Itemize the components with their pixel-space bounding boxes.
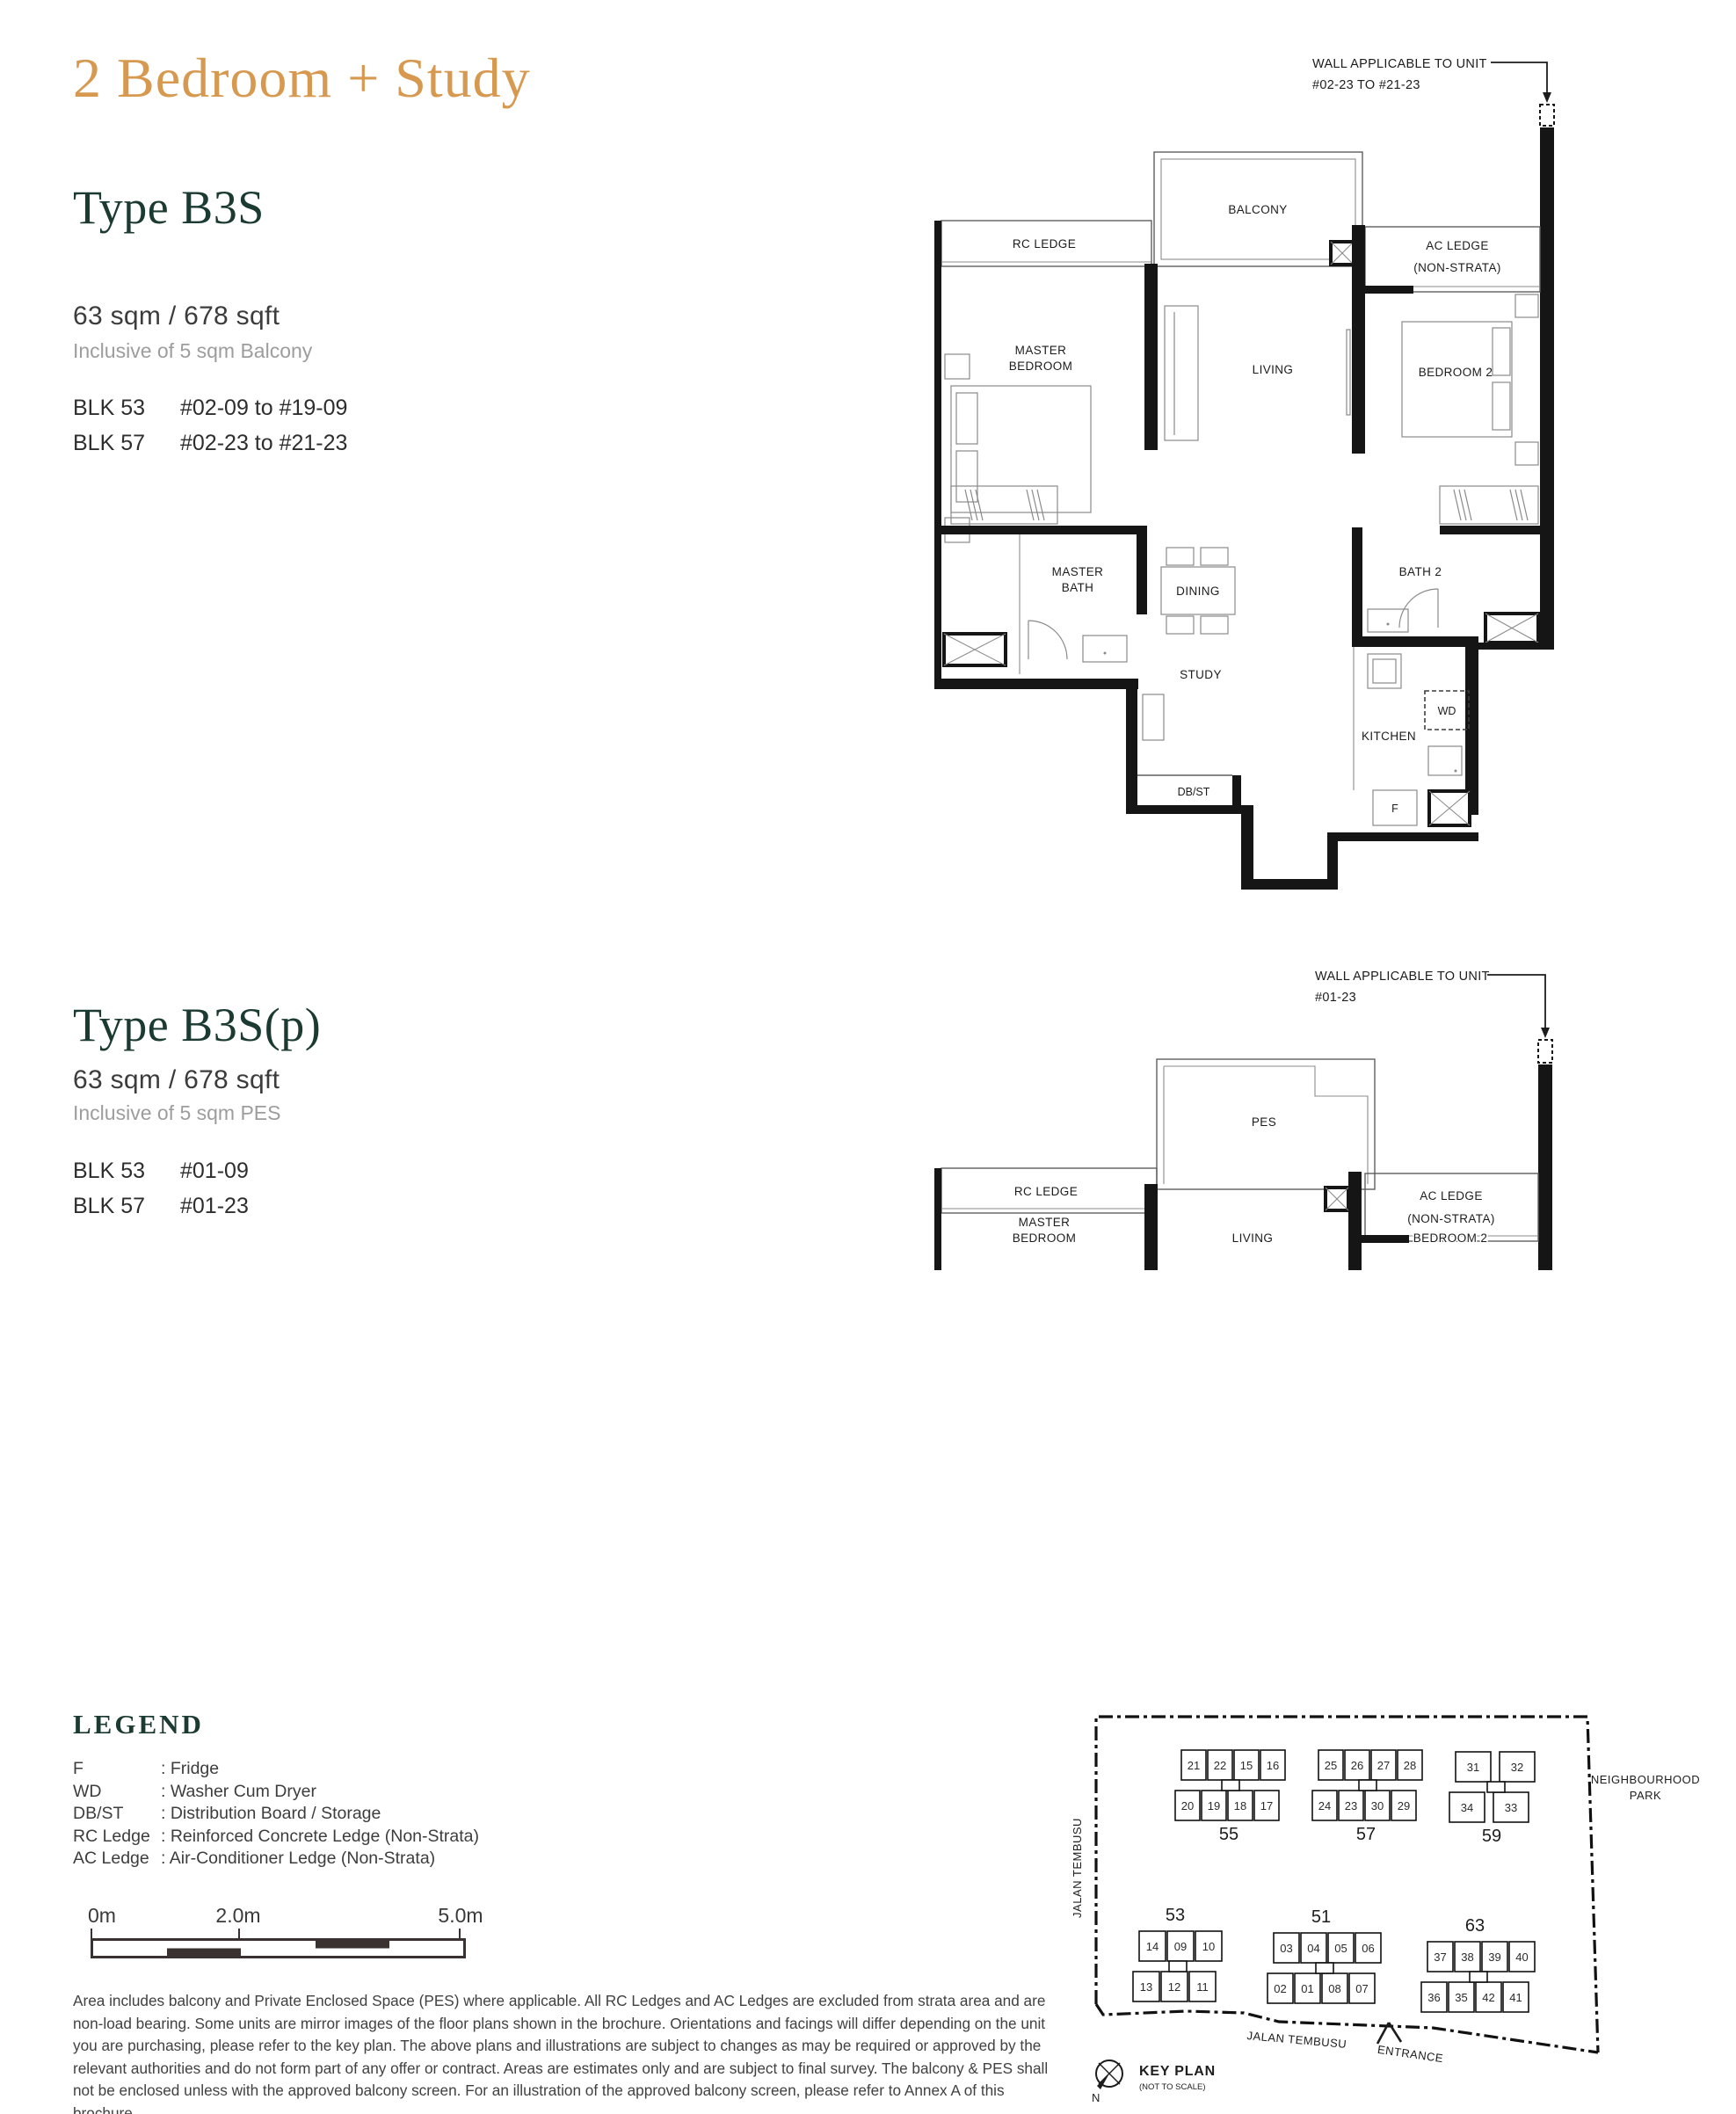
study-left-wall	[1126, 689, 1137, 814]
living-left-wall	[1144, 1184, 1158, 1270]
hob-dot	[1455, 770, 1457, 773]
legend-definition: : Air-Conditioner Ledge (Non-Strata)	[161, 1848, 435, 1871]
living-right-wall	[1352, 225, 1365, 454]
dining-label: DINING	[1176, 585, 1220, 598]
key-plan-unit-number: 42	[1482, 1991, 1494, 2004]
dbst-label: DB/ST	[1178, 786, 1210, 798]
tv-console	[1347, 330, 1350, 415]
key-plan-unit-number: 21	[1188, 1759, 1200, 1772]
type-b3s-inclusive: Inclusive of 5 sqm Balcony	[73, 339, 312, 363]
legend-term: AC Ledge	[73, 1848, 161, 1871]
right-outer-wall	[1538, 1064, 1552, 1270]
key-plan-unit-number: 40	[1515, 1951, 1528, 1964]
bath2-bottom-wall	[1358, 636, 1478, 647]
key-plan-block-number: 63	[1465, 1916, 1485, 1936]
wd-label: WD	[1438, 705, 1456, 717]
master-bedroom-label-1: MASTER	[1015, 344, 1067, 357]
key-plan-unit-number: 19	[1208, 1799, 1220, 1813]
key-plan-block-63: 373839403635424163	[1421, 1916, 1535, 2012]
key-plan-title: KEY PLAN	[1139, 2064, 1216, 2079]
legend-term: RC Ledge	[73, 1826, 161, 1849]
key-plan-block-core	[1359, 1780, 1376, 1791]
key-plan-unit-number: 29	[1398, 1799, 1410, 1813]
scale-segment	[389, 1941, 463, 1956]
wall	[1465, 643, 1554, 650]
key-plan-block-number: 57	[1356, 1825, 1376, 1844]
dashed-wall-segment	[1538, 1040, 1552, 1063]
corridor-bottom-wall	[1241, 879, 1338, 890]
brochure-page: 2 Bedroom + Study Type B3S 63 sqm / 678 …	[0, 0, 1736, 2114]
plan1-wall-annotation-line2: #02-23 TO #21-23	[1312, 78, 1420, 92]
legend-row: WD: Washer Cum Dryer	[73, 1781, 479, 1804]
living-label: LIVING	[1232, 1231, 1274, 1245]
bedroom2-label: BEDROOM 2	[1413, 1231, 1488, 1245]
dining-chair	[1201, 548, 1228, 565]
dashed-wall-segment	[1540, 105, 1554, 126]
key-plan-unit-number: 35	[1455, 1991, 1467, 2004]
bedroom2-bed	[1402, 322, 1512, 437]
legend-term: DB/ST	[73, 1803, 161, 1826]
key-plan-unit-number: 12	[1168, 1980, 1180, 1994]
bath-bottom-wall	[934, 679, 1138, 689]
key-plan-unit-number: 05	[1334, 1942, 1347, 1955]
unit-range: #01-09	[180, 1159, 249, 1184]
floor-plan-type-b3s: WALL APPLICABLE TO UNIT #02-23 TO #21-23…	[923, 48, 1573, 914]
unit-blk: BLK 53	[73, 1159, 180, 1184]
key-plan-unit-number: 25	[1325, 1759, 1337, 1772]
unit-range: #02-23 to #21-23	[180, 431, 347, 456]
legend-row: DB/ST: Distribution Board / Storage	[73, 1803, 479, 1826]
key-plan-unit-number: 15	[1240, 1759, 1253, 1772]
wall-stub	[1365, 286, 1413, 294]
dining-chair	[1166, 616, 1194, 634]
key-plan-unit-number: 30	[1371, 1799, 1384, 1813]
drain-dot	[1104, 652, 1107, 655]
north-compass-icon	[1096, 2060, 1122, 2089]
key-plan-block-57: 252627282423302957	[1312, 1750, 1422, 1844]
leader-arrowhead	[1541, 1028, 1550, 1038]
pes-label: PES	[1252, 1115, 1276, 1129]
bath-wall	[1137, 531, 1147, 614]
wardrobe-hatch	[965, 490, 1044, 520]
scale-segment	[241, 1941, 315, 1956]
nightstand	[1515, 294, 1538, 317]
legend-definition: : Washer Cum Dryer	[161, 1781, 316, 1804]
master-bedroom-label-1: MASTER	[1019, 1216, 1071, 1229]
key-plan-block-number: 53	[1166, 1906, 1185, 1925]
park-label-2: PARK	[1630, 1789, 1661, 1802]
key-plan-block-core	[1470, 1972, 1487, 1982]
key-plan-unit-number: 01	[1301, 1982, 1313, 1995]
master-bath-label-2: BATH	[1062, 581, 1094, 594]
floor-plan-type-b3sp: WALL APPLICABLE TO UNIT #01-23 PES RC LE…	[923, 963, 1573, 1270]
key-plan-unit-number: 08	[1328, 1982, 1340, 1995]
leader-line	[1491, 62, 1547, 92]
pillow	[956, 393, 977, 444]
road-label-bottom: JALAN TEMBUSU	[1246, 2029, 1347, 2051]
pillow	[1493, 382, 1510, 430]
study-label: STUDY	[1180, 668, 1222, 681]
plan2-wall-annotation-line1: WALL APPLICABLE TO UNIT	[1315, 970, 1490, 984]
key-plan-unit-number: 38	[1461, 1951, 1473, 1964]
legend-term: WD	[73, 1781, 161, 1804]
key-plan-unit-number: 26	[1351, 1759, 1363, 1772]
key-plan-unit-number: 39	[1488, 1951, 1500, 1964]
key-plan-unit-number: 24	[1318, 1799, 1331, 1813]
scale-label-2m: 2.0m	[215, 1904, 260, 1928]
key-plan-subtitle: (NOT TO SCALE)	[1139, 2082, 1206, 2092]
key-plan-unit-number: 22	[1214, 1759, 1226, 1772]
sofa	[1165, 306, 1198, 440]
key-plan-unit-number: 32	[1511, 1761, 1523, 1774]
scale-segment	[167, 1941, 241, 1956]
key-plan-block-55: 212215162019181755	[1175, 1750, 1285, 1844]
right-outer-wall	[1540, 127, 1554, 643]
legend-title: LEGEND	[73, 1709, 204, 1740]
key-plan-unit-number: 09	[1174, 1940, 1187, 1953]
rc-ledge-label: RC LEDGE	[1013, 237, 1076, 251]
living-right-wall	[1348, 1172, 1362, 1270]
dining-chair	[1166, 548, 1194, 565]
shower-door-arc	[1028, 621, 1067, 659]
key-plan-block-59: 3132343359	[1449, 1752, 1535, 1846]
leader-line	[1487, 975, 1545, 1028]
drain-dot	[1387, 623, 1390, 626]
plan1-wall-annotation-line1: WALL APPLICABLE TO UNIT	[1312, 57, 1487, 71]
key-plan-unit-number: 34	[1461, 1801, 1473, 1814]
legend-row: RC Ledge: Reinforced Concrete Ledge (Non…	[73, 1826, 479, 1849]
key-plan: 2122151620191817552526272824233029573132…	[1055, 1710, 1736, 2114]
scale-segment	[93, 1941, 167, 1956]
wall	[1440, 526, 1540, 534]
bath2-left-wall	[1352, 527, 1362, 647]
shower-door-arc	[1399, 589, 1438, 628]
ac-ledge-label: AC LEDGE	[1420, 1189, 1482, 1202]
kitchen-sink-inner	[1373, 659, 1396, 683]
legend-list: F: FridgeWD: Washer Cum DryerDB/ST: Dist…	[73, 1758, 479, 1871]
legend-row: F: Fridge	[73, 1758, 479, 1781]
key-plan-unit-number: 11	[1196, 1980, 1209, 1994]
master-bath-label-1: MASTER	[1052, 565, 1104, 578]
ac-ledge-label-2: (NON-STRATA)	[1407, 1212, 1495, 1225]
key-plan-unit-number: 16	[1267, 1759, 1279, 1772]
nightstand	[945, 354, 970, 379]
legend-definition: : Distribution Board / Storage	[161, 1803, 381, 1826]
study-desk	[1143, 694, 1164, 740]
fridge-label: F	[1391, 803, 1398, 815]
bath2-label: BATH 2	[1399, 565, 1442, 578]
key-plan-unit-number: 20	[1181, 1799, 1194, 1813]
scale-segment	[316, 1941, 389, 1956]
corridor-wall	[1241, 805, 1253, 879]
type-b3sp-unit-list: BLK 53#01-09BLK 57#01-23	[73, 1159, 249, 1229]
kitchen-bottom-wall	[1327, 832, 1478, 841]
unit-range: #02-09 to #19-09	[180, 396, 347, 421]
road-label-left: JALAN TEMBUSU	[1071, 1818, 1084, 1918]
dbst-right-wall	[1232, 775, 1241, 810]
key-plan-block-53: 14091013121153	[1133, 1906, 1222, 2001]
rc-ledge-label: RC LEDGE	[1014, 1185, 1078, 1198]
living-left-wall	[1144, 264, 1158, 450]
scale-label-5m: 5.0m	[438, 1904, 483, 1928]
unit-blk: BLK 57	[73, 1194, 180, 1219]
type-b3sp-heading: Type B3S(p)	[73, 998, 321, 1052]
master-bedroom-label-2: BEDROOM	[1013, 1231, 1077, 1245]
legend-definition: : Reinforced Concrete Ledge (Non-Strata)	[161, 1826, 479, 1849]
unit-range-row: BLK 57#02-23 to #21-23	[73, 431, 347, 456]
key-plan-unit-number: 36	[1427, 1991, 1440, 2004]
key-plan-unit-number: 31	[1467, 1761, 1479, 1774]
key-plan-block-number: 59	[1482, 1827, 1501, 1846]
key-plan-block-core	[1222, 1780, 1239, 1791]
key-plan-unit-number: 07	[1355, 1982, 1368, 1995]
key-plan-block-core	[1169, 1961, 1187, 1972]
unit-range-row: BLK 53#01-09	[73, 1159, 249, 1184]
unit-range-row: BLK 53#02-09 to #19-09	[73, 396, 347, 421]
pillow	[1493, 328, 1510, 375]
type-b3s-unit-list: BLK 53#02-09 to #19-09BLK 57#02-23 to #2…	[73, 396, 347, 466]
type-b3sp-area: 63 sqm / 678 sqft	[73, 1065, 280, 1095]
scale-label-0m: 0m	[88, 1904, 116, 1928]
key-plan-unit-number: 18	[1234, 1799, 1246, 1813]
wall	[934, 526, 1147, 534]
left-outer-wall	[934, 221, 941, 689]
key-plan-block-number: 55	[1219, 1825, 1238, 1844]
key-plan-unit-number: 14	[1146, 1940, 1159, 1953]
pillow	[956, 451, 977, 502]
unit-range: #01-23	[180, 1194, 249, 1219]
north-label: N	[1092, 2091, 1100, 2104]
key-plan-unit-number: 02	[1274, 1982, 1286, 1995]
living-label: LIVING	[1253, 363, 1294, 376]
park-label-1: NEIGHBOURHOOD	[1591, 1773, 1700, 1786]
unit-range-row: BLK 57#01-23	[73, 1194, 249, 1219]
key-plan-unit-number: 17	[1260, 1799, 1273, 1813]
type-b3s-area: 63 sqm / 678 sqft	[73, 301, 280, 331]
key-plan-unit-number: 23	[1345, 1799, 1357, 1813]
page-title: 2 Bedroom + Study	[73, 46, 531, 111]
key-plan-unit-number: 04	[1307, 1942, 1319, 1955]
unit-blk: BLK 53	[73, 396, 180, 421]
left-outer-wall	[934, 1168, 941, 1270]
legend-definition: : Fridge	[161, 1758, 219, 1781]
legend-term: F	[73, 1758, 161, 1781]
key-plan-unit-number: 10	[1202, 1940, 1215, 1953]
key-plan-unit-number: 33	[1505, 1801, 1517, 1814]
key-plan-unit-number: 06	[1362, 1942, 1374, 1955]
key-plan-unit-number: 27	[1377, 1759, 1390, 1772]
type-b3s-heading: Type B3S	[73, 180, 265, 235]
dbst-bottom-wall	[1126, 805, 1241, 814]
type-b3sp-inclusive: Inclusive of 5 sqm PES	[73, 1101, 281, 1125]
bedroom2-label: BEDROOM 2	[1419, 366, 1493, 379]
ac-ledge-label: AC LEDGE	[1426, 239, 1488, 252]
key-plan-unit-number: 37	[1434, 1951, 1446, 1964]
kitchen-label: KITCHEN	[1362, 730, 1416, 743]
key-plan-block-core	[1316, 1963, 1333, 1973]
plan2-wall-annotation-line2: #01-23	[1315, 991, 1356, 1005]
master-bed	[951, 386, 1091, 512]
key-plan-unit-number: 28	[1404, 1759, 1416, 1772]
wardrobe-hatch	[1454, 490, 1528, 520]
key-plan-blocks: 2122151620191817552526272824233029573132…	[1133, 1750, 1535, 2012]
scale-bar	[91, 1938, 466, 1958]
vanity	[1083, 636, 1127, 662]
key-plan-unit-number: 03	[1280, 1942, 1292, 1955]
wall-stub	[1362, 1235, 1409, 1243]
ac-ledge-label-2: (NON-STRATA)	[1413, 261, 1501, 274]
dining-chair	[1201, 616, 1228, 634]
disclaimer-text: Area includes balcony and Private Enclos…	[73, 1990, 1056, 2114]
key-plan-block-51: 030405060201080751	[1267, 1907, 1381, 2003]
entrance-label: ENTRANCE	[1376, 2043, 1444, 2065]
legend-row: AC Ledge: Air-Conditioner Ledge (Non-Str…	[73, 1848, 479, 1871]
entry-wall	[1327, 839, 1338, 890]
leader-arrowhead	[1543, 92, 1551, 103]
ac-ledge-outline	[1365, 227, 1540, 292]
key-plan-block-number: 51	[1311, 1907, 1331, 1927]
nightstand	[1515, 442, 1538, 465]
key-plan-unit-number: 41	[1509, 1991, 1522, 2004]
unit-blk: BLK 57	[73, 431, 180, 456]
master-bedroom-label-2: BEDROOM	[1009, 360, 1073, 373]
key-plan-block-core	[1487, 1782, 1505, 1792]
balcony-label: BALCONY	[1228, 203, 1287, 216]
key-plan-unit-number: 13	[1140, 1980, 1152, 1994]
